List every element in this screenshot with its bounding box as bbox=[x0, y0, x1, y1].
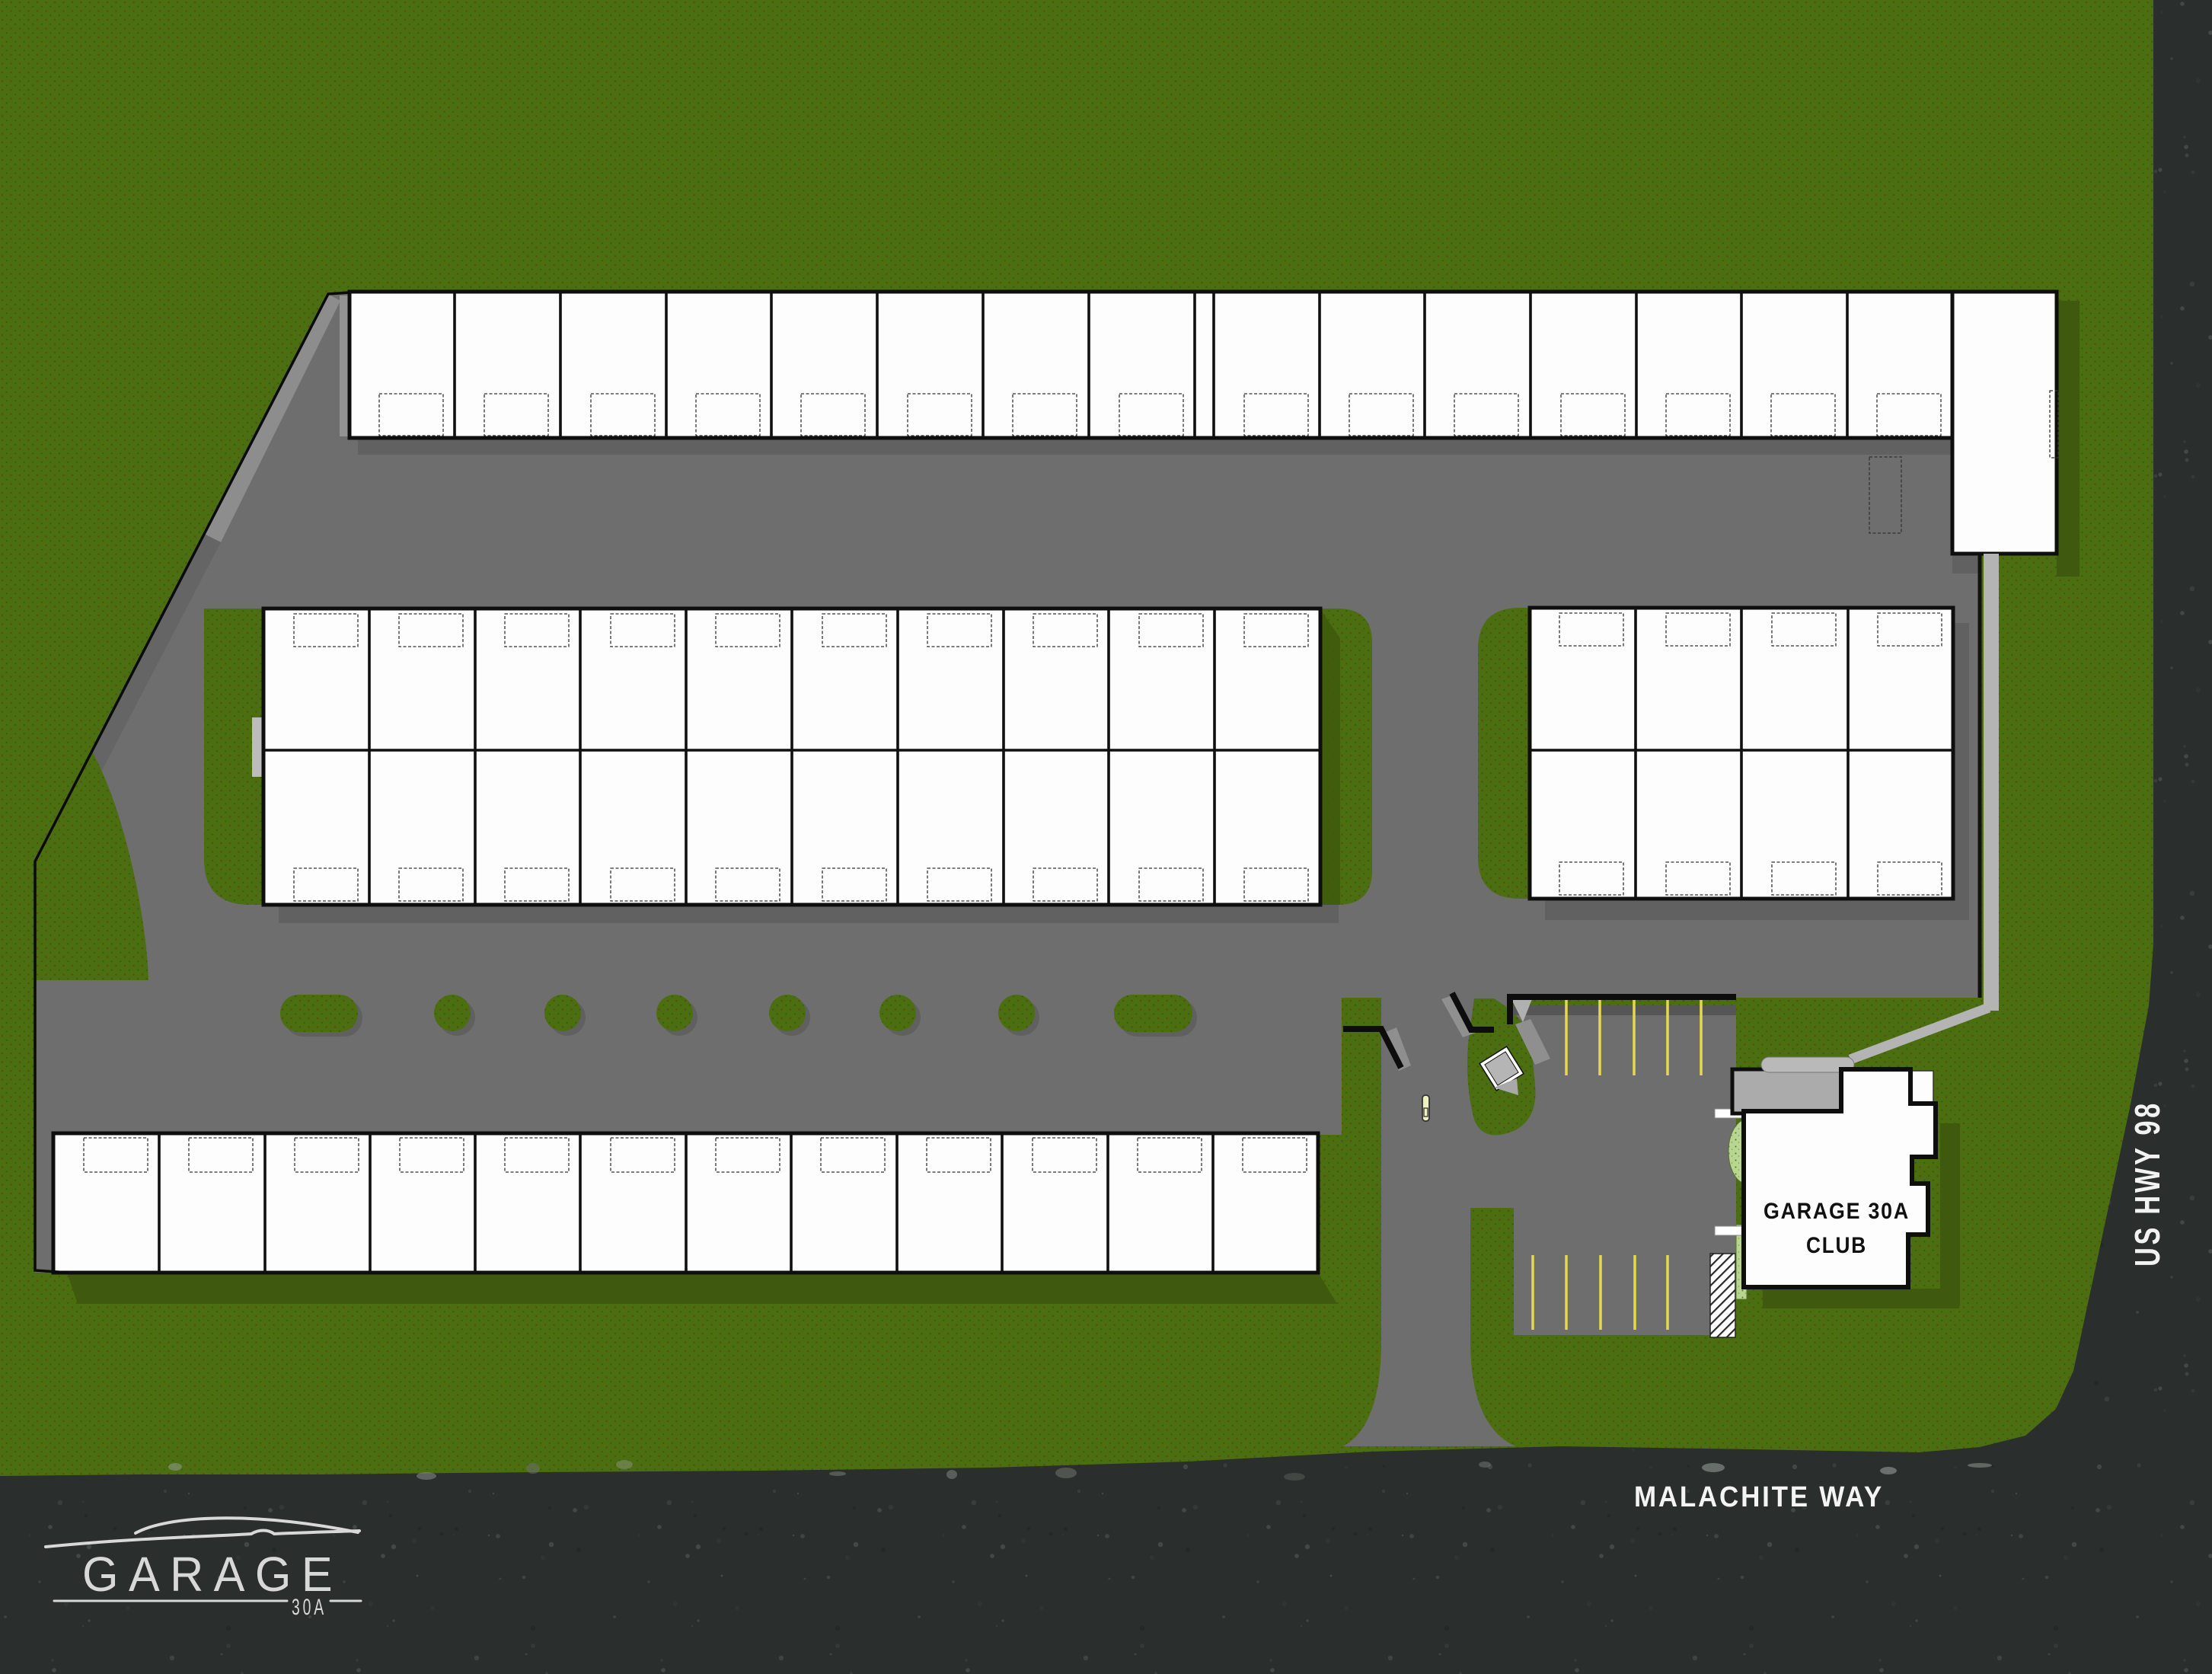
svg-text:GARAGE: GARAGE bbox=[82, 1547, 343, 1602]
svg-text:MALACHITE WAY: MALACHITE WAY bbox=[1634, 1481, 1884, 1513]
svg-text:GARAGE 30A: GARAGE 30A bbox=[1764, 1199, 1910, 1224]
svg-text:US HWY 98: US HWY 98 bbox=[2127, 1101, 2167, 1267]
svg-text:30A: 30A bbox=[292, 1595, 327, 1620]
svg-text:CLUB: CLUB bbox=[1806, 1233, 1867, 1258]
